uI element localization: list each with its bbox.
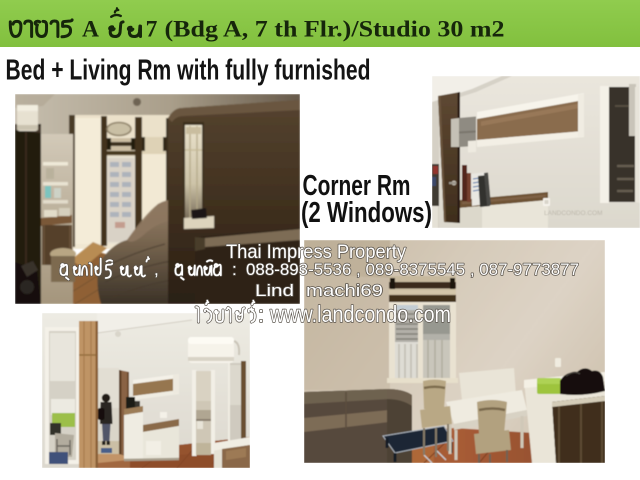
svg-text:(Bdg A, 7 th Flr.)/Studio 30 m: (Bdg A, 7 th Flr.)/Studio 30 m2	[165, 17, 505, 43]
svg-text:7: 7	[146, 17, 158, 43]
svg-text:machi69: machi69	[306, 281, 383, 300]
svg-text:www.landcondo.com: www.landcondo.com	[269, 301, 451, 327]
svg-text:,: ,	[154, 260, 159, 279]
svg-text:088-893-5536 , 089-8375545 , 0: 088-893-5536 , 089-8375545 , 087-9773877	[246, 260, 579, 279]
svg-text:A: A	[82, 17, 99, 43]
svg-text:Bed + Living Rm with fully fur: Bed + Living Rm with fully furnished	[6, 55, 371, 87]
svg-text:(2 Windows): (2 Windows)	[301, 197, 432, 229]
svg-text:LANDCONDO.COM: LANDCONDO.COM	[544, 210, 603, 217]
svg-text::: :	[232, 260, 237, 279]
svg-text:Lind: Lind	[255, 281, 294, 300]
svg-text::: :	[258, 302, 264, 327]
